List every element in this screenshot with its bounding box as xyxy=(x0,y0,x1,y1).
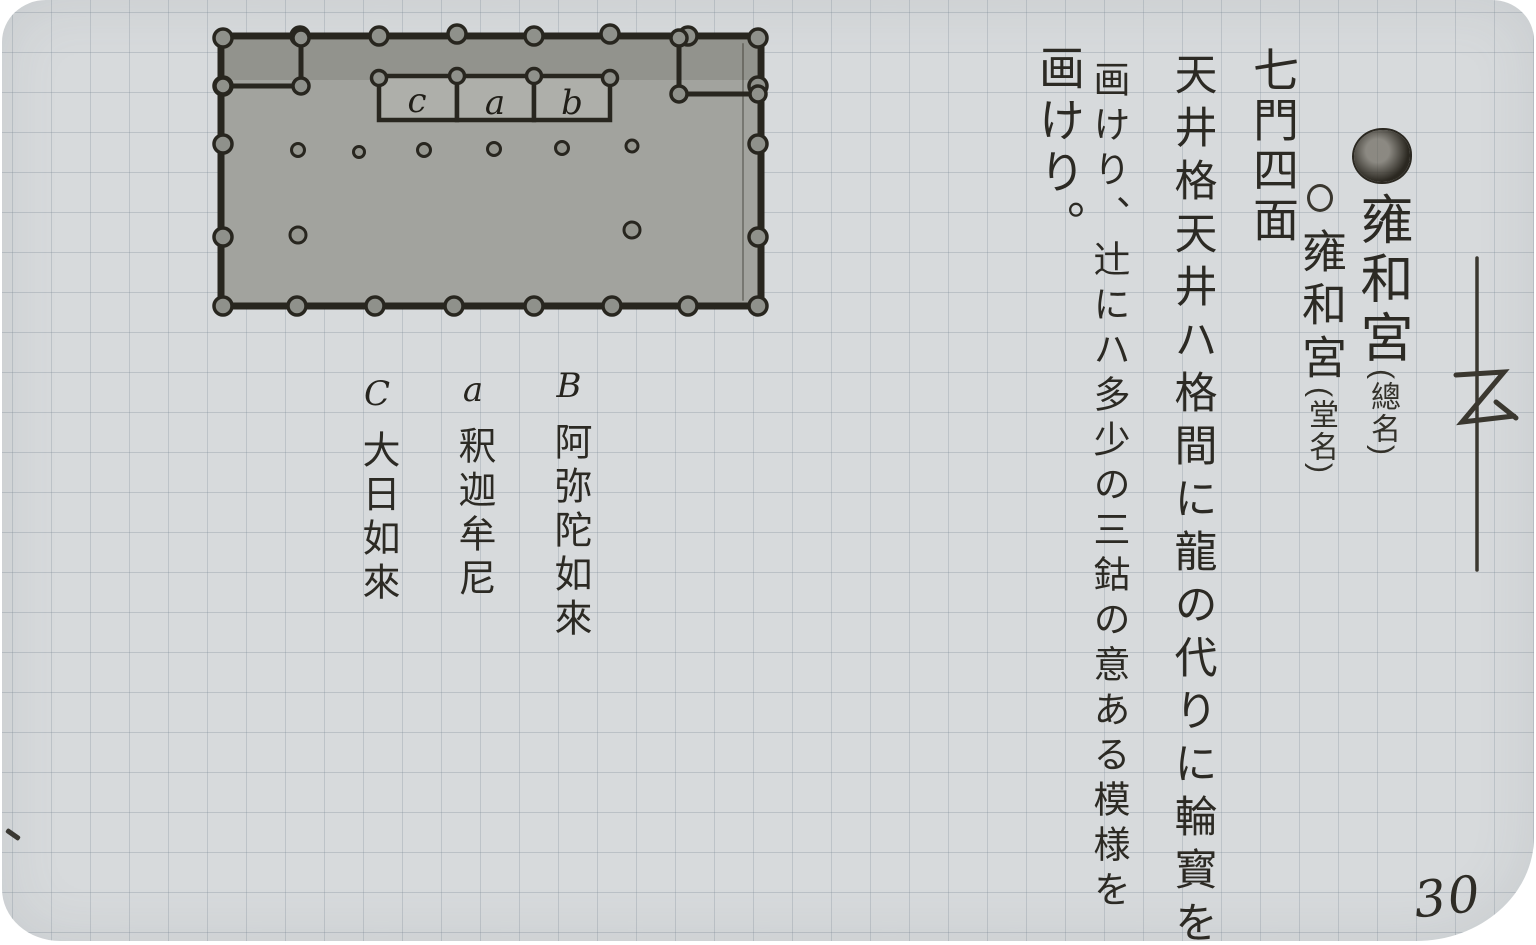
altar-label-c: c xyxy=(407,81,426,121)
deity-key-letter: C xyxy=(357,374,397,430)
name-qualifier: (堂名) xyxy=(1304,387,1337,475)
ink-speck xyxy=(5,828,21,841)
title-column-general-name: 雍和宮(總名) xyxy=(1354,128,1410,457)
name-qualifier: (總名) xyxy=(1366,369,1399,457)
note-column-gates: 七門四面 xyxy=(1250,46,1296,246)
direction-mark xyxy=(1442,250,1532,580)
temple-name: 雍和宮 xyxy=(1295,228,1346,387)
page-number: 30 xyxy=(1411,865,1484,930)
filled-circle-mark xyxy=(1354,130,1410,182)
deity-column-b: B阿弥陀如來 xyxy=(550,366,588,642)
deity-column-a: a釈迦牟尼 xyxy=(454,370,492,602)
floor-plan-sketch: c a b xyxy=(207,22,782,322)
altar-label-a: a xyxy=(485,83,505,123)
deity-name: 大日如來 xyxy=(356,430,398,606)
deity-name: 釈迦牟尼 xyxy=(452,426,494,602)
title-column-hall-name: 雍和宮(堂名) xyxy=(1298,184,1343,475)
z-mark xyxy=(1456,372,1516,422)
altar-label-b: b xyxy=(561,83,583,123)
deity-key-letter: a xyxy=(453,370,493,426)
deity-key-letter: B xyxy=(549,366,589,422)
deity-column-c: C大日如來 xyxy=(358,374,396,606)
temple-name: 雍和宮 xyxy=(1353,192,1412,369)
note-column-ceiling-1: 天井格天井ハ格間に龍の代りに輪寳を xyxy=(1170,52,1213,945)
note-column-ceiling-2: 画けり、辻にハ多少の三鈷の意ある模様を xyxy=(1090,60,1127,915)
graph-paper: c a b B阿弥陀如來 a釈迦牟尼 C大日如來 雍和宮(總名) 雍和宮(堂名) xyxy=(2,0,1534,941)
scanned-notebook-page: c a b B阿弥陀如來 a釈迦牟尼 C大日如來 雍和宮(總名) 雍和宮(堂名) xyxy=(0,0,1536,945)
open-circle-mark xyxy=(1307,184,1333,212)
note-column-ceiling-3: 画けり。 xyxy=(1036,44,1082,252)
deity-name: 阿弥陀如來 xyxy=(548,422,590,642)
